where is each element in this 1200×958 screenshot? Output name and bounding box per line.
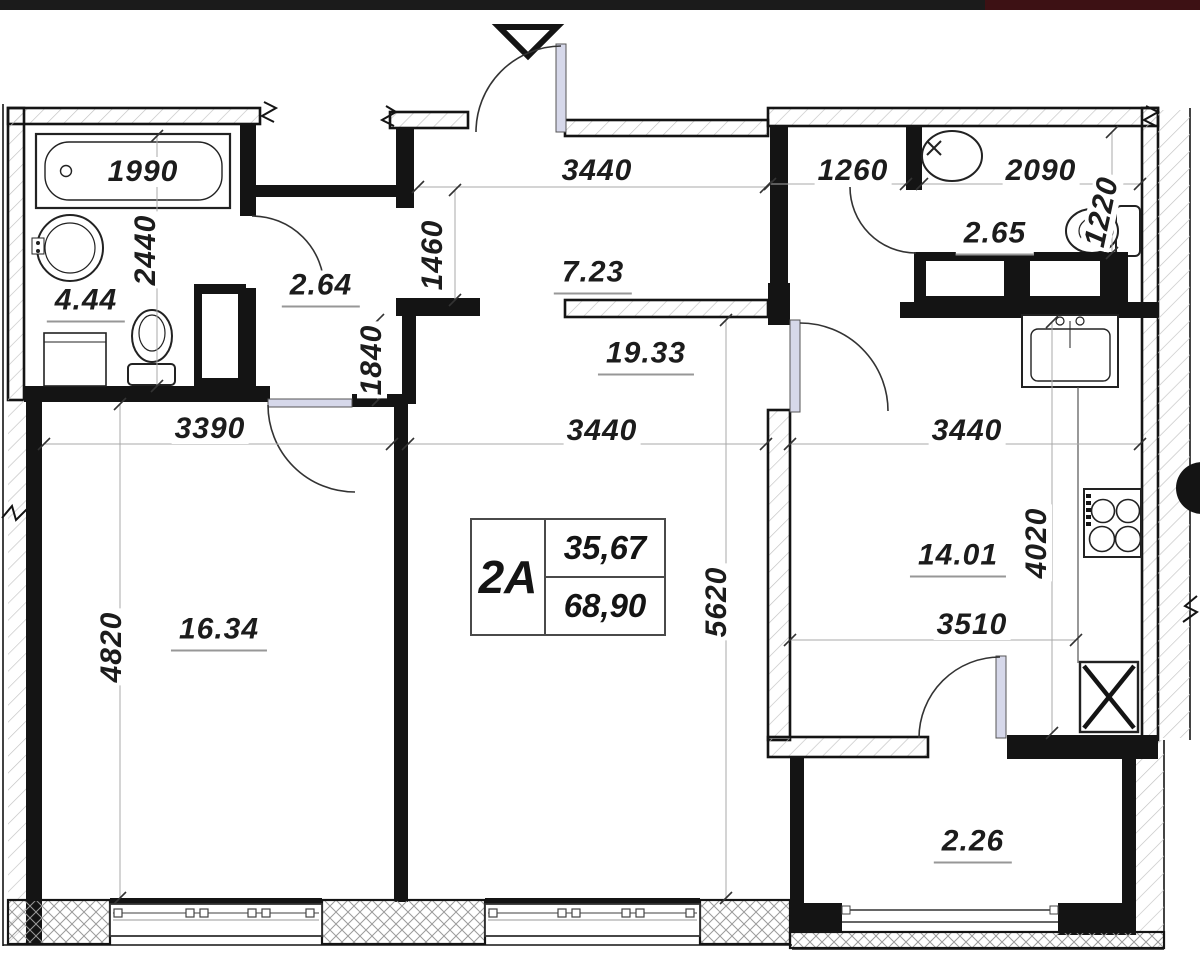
kitchen-stove — [1084, 489, 1141, 557]
dim-kitchen-width: 3440 — [929, 416, 1006, 446]
area-balcony: 2.26 — [934, 827, 1012, 864]
bedroom-door — [268, 399, 355, 492]
bathroom-toilet — [128, 310, 175, 385]
dim-bedroom-width: 3390 — [172, 414, 249, 444]
floor-plan-page: 1990 2440 4.44 2.64 3390 1460 1840 3440 … — [0, 0, 1200, 958]
area-kitchen: 14.01 — [910, 541, 1006, 578]
bathroom-cabinet — [44, 333, 106, 386]
entry-door — [476, 27, 566, 132]
balcony-railing — [842, 906, 1058, 922]
wc-appliance-counter — [914, 252, 1128, 304]
area-bathroom: 4.44 — [47, 286, 125, 323]
bathroom-sink — [32, 215, 103, 281]
area-hall: 2.64 — [282, 271, 360, 308]
bedroom-window — [110, 904, 322, 936]
unit-total-area: 68,90 — [546, 578, 664, 634]
unit-areas: 35,67 68,90 — [546, 520, 664, 634]
entry-marker-triangle — [499, 27, 557, 56]
dim-corridor-width: 1460 — [418, 217, 448, 294]
dim-bathtub-length: 1990 — [105, 157, 182, 187]
unit-code: 2A — [472, 520, 546, 634]
area-corridor: 7.23 — [554, 258, 632, 295]
dim-bathroom-width: 2440 — [131, 212, 161, 289]
closet-door — [850, 187, 916, 253]
dim-kitchen-depth: 4020 — [1022, 505, 1052, 582]
dim-hall-length: 1840 — [357, 322, 387, 399]
kitchen-door — [790, 320, 888, 412]
balcony-door — [919, 656, 1006, 738]
top-page-band — [0, 0, 1200, 10]
area-living-room: 19.33 — [598, 339, 694, 376]
unit-living-area: 35,67 — [546, 520, 664, 578]
wc-corner-sink — [922, 131, 982, 181]
dim-corridor-length: 3440 — [559, 156, 636, 186]
area-wc: 2.65 — [956, 219, 1034, 256]
area-bedroom: 16.34 — [171, 615, 267, 652]
bathroom-tall-cabinet — [194, 284, 246, 386]
dim-living-length: 5620 — [702, 564, 732, 641]
kitchen-fridge — [1080, 662, 1138, 732]
dim-kitchen-inner-width: 3510 — [934, 610, 1011, 640]
dim-living-width: 3440 — [564, 416, 641, 446]
unit-info-box: 2A 35,67 68,90 — [470, 518, 666, 636]
floor-plan-drawing — [0, 0, 1200, 958]
kitchen-sink — [1022, 315, 1118, 387]
dim-closet-width: 1260 — [815, 156, 892, 186]
living-room-window — [485, 904, 700, 936]
dim-bedroom-length: 4820 — [97, 609, 127, 686]
dim-wc-width: 2090 — [1003, 156, 1080, 186]
